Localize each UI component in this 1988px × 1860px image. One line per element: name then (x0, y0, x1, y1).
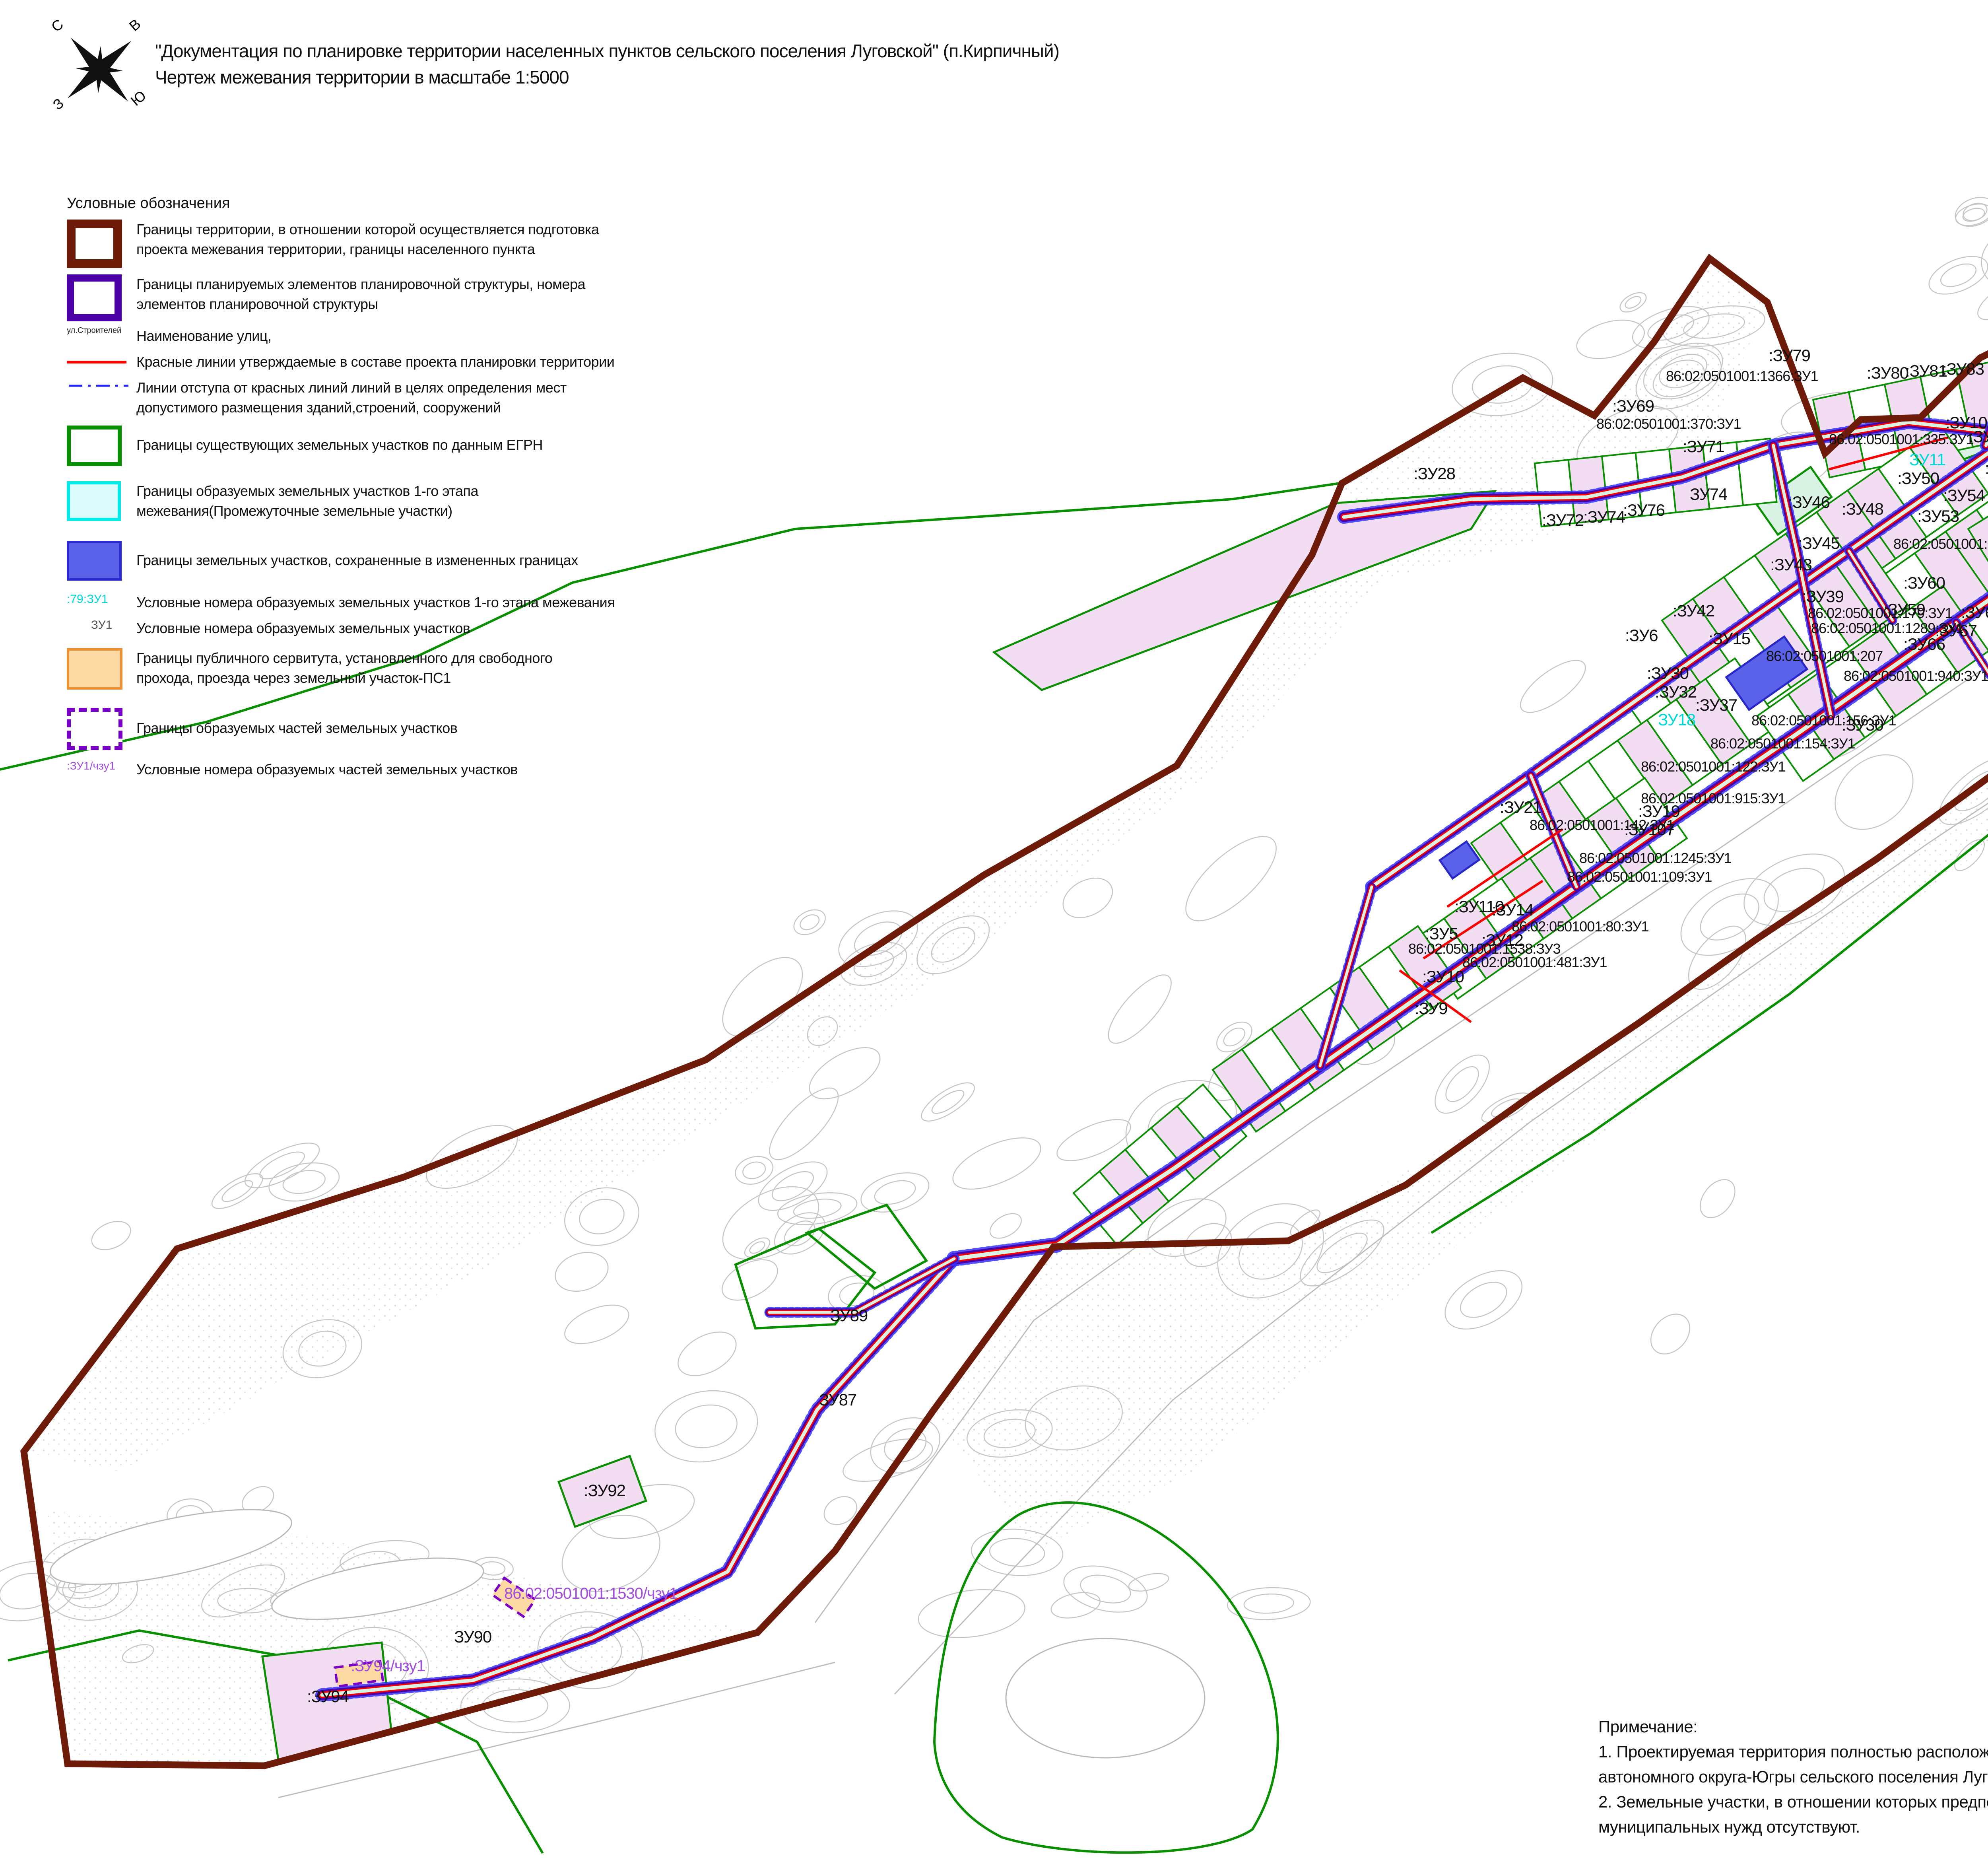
map-label: :ЗУ48 (1842, 499, 1883, 518)
legend-item-red-lines: Красные линии утверждаемые в составе про… (67, 352, 614, 372)
compass-rose: С В З Ю (32, 4, 163, 135)
note-line: 2. Земельные участки, в отношении которы… (1598, 1789, 1988, 1814)
map-label: :ЗУ72 (1542, 511, 1584, 529)
map-label: ЗУ18 (1658, 710, 1695, 729)
legend-item-egrn-parcels: Границы существующих земельных участков … (67, 426, 543, 466)
map-label: :ЗУ94 (307, 1687, 349, 1706)
note-line: Примечание: (1598, 1714, 1988, 1739)
map-label: :ЗУ15 (1708, 629, 1750, 648)
map-label: :ЗУ42 (1673, 601, 1714, 620)
offset-line-swatch (67, 378, 130, 394)
legend-item-saved-parcels: Границы земельных участков, сохраненные … (67, 541, 578, 581)
map-label: :ЗУ9 (1415, 999, 1448, 1018)
notes-block: Примечание: 1. Проектируемая территория … (1598, 1714, 1988, 1839)
map-label: ЗУ89 (830, 1306, 868, 1325)
map-label: :ЗУ55 (1985, 459, 1988, 478)
map-label: :ЗУ53 (1917, 507, 1959, 525)
map-label: :ЗУ32 (1655, 682, 1697, 701)
legend-item-part-numbers: :ЗУ1/чзу1 Условные номера образуемых час… (67, 760, 518, 779)
map-label: :ЗУ50 (1897, 469, 1939, 488)
map-label: :ЗУ66 (1903, 635, 1945, 653)
map-label: :ЗУ46 (1788, 493, 1830, 511)
map-label: ЗУ11 (1909, 450, 1945, 469)
map-label: :ЗУ68 (1961, 603, 1988, 622)
map-label: :ЗУ10 (1422, 967, 1464, 986)
map-label: :ЗУ80 (1867, 363, 1908, 382)
street-name-sample: ул.Строителей (67, 326, 121, 335)
stage1-number-sample: :79:ЗУ1 (67, 593, 108, 606)
map-label: :ЗУ76 (1623, 501, 1665, 519)
map-label: 86:02:0501001:940:ЗУ1 (1844, 668, 1988, 684)
map-label: :ЗУ74 (1583, 507, 1625, 526)
map-label: 86:02:0501001:1366:ЗУ1 (1666, 368, 1818, 384)
legend-item-planning-elements: Границы планируемых элементов планировоч… (67, 274, 585, 321)
map-label: ЗУ87 (819, 1390, 856, 1409)
map-label: :ЗУ54 (1943, 486, 1985, 505)
map-label: 86:02:0501001:1245:ЗУ1 (1579, 850, 1732, 866)
map-label: 86:02:0501001:481:ЗУ1 (1462, 954, 1607, 970)
legend-item-parcel-numbers: ЗУ1 Условные номера образуемых земельных… (67, 618, 470, 638)
map-label: 86:02:0501001:370:ЗУ1 (1596, 416, 1741, 432)
egrn-parcel-swatch (67, 426, 122, 466)
map-label: :ЗУ60 (1903, 573, 1945, 592)
map-label: :ЗУ5 (1425, 924, 1458, 943)
map-label: ЗУ90 (454, 1627, 491, 1646)
legend-item-street-names: ул.Строителей Наименование улиц, (67, 326, 272, 346)
page: { "title": { "line1": "\"Документация по… (0, 0, 1988, 1860)
legend-item-stage1-numbers: :79:ЗУ1 Условные номера образуемых земел… (67, 593, 615, 612)
map-label: 86:02:0501001:122:ЗУ1 (1641, 758, 1786, 775)
map-label: 86:02:0501001:154:ЗУ1 (1710, 735, 1855, 752)
map-label: 86:02:0501001:335:ЗУ1 (1829, 431, 1974, 447)
note-line: автономного округа-Югры сельского поселе… (1598, 1764, 1988, 1789)
map-label: :ЗУ107 (1624, 820, 1675, 839)
map-label: 86:02:0501001:179:ЗУ1 (1808, 605, 1953, 621)
part-number-sample: :ЗУ1/чзу1 (67, 760, 115, 772)
map-label: :ЗУ30 (1647, 664, 1689, 682)
red-line-swatch (67, 361, 126, 363)
compass-east-label: В (126, 16, 144, 34)
title-line-1: "Документация по планировке территории н… (155, 38, 1507, 64)
compass-south-label: Ю (128, 87, 149, 109)
map-label: :ЗУ92 (584, 1481, 625, 1500)
map-label: :ЗУ105 (1969, 427, 1988, 446)
map-label: ЗУ74 (1690, 485, 1728, 503)
map-label: :ЗУ94/чзу1 (351, 1657, 425, 1675)
map-label: :ЗУ6 (1625, 626, 1658, 645)
stage1-parcel-swatch (67, 481, 121, 521)
parcel-number-sample: ЗУ1 (91, 618, 113, 632)
note-line: 1. Проектируемая территория полностью ра… (1598, 1739, 1988, 1764)
servitude-swatch (67, 648, 122, 690)
legend-item-parcel-parts: Границы образуемых частей земельных учас… (67, 708, 457, 750)
map-label: 86:02:0501001:915:ЗУ1 (1641, 790, 1786, 807)
drawing-title: "Документация по планировке территории н… (155, 38, 1507, 90)
map-label: :ЗУ39 (1802, 587, 1844, 606)
map-label: :ЗУ83 (1942, 360, 1984, 378)
map-label: 86:02:0501001:80:ЗУ1 (1512, 918, 1649, 935)
territory-boundary-swatch (67, 220, 122, 268)
map-label: :ЗУ81 (1905, 362, 1947, 380)
map-label: :ЗУ71 (1683, 437, 1724, 456)
map-label: 86:02:0501001:1530/чзу1 (504, 1585, 678, 1602)
map-label: :ЗУ43 (1770, 555, 1812, 574)
map-label: :ЗУ21 (1500, 798, 1541, 816)
planning-element-swatch (67, 274, 122, 321)
legend-heading: Условные обозначения (67, 195, 230, 212)
saved-parcel-swatch (67, 541, 122, 581)
title-line-2: Чертеж межевания территории в масштабе 1… (155, 64, 1507, 90)
legend-item-stage1-parcels: Границы образуемых земельных участков 1-… (67, 481, 478, 521)
legend-item-servitude: Границы публичного сервитута, установлен… (67, 648, 552, 690)
legend-item-territory-boundary: Границы территории, в отношении которой … (67, 220, 599, 268)
map-label: 86:02:0501001:272:ЗУ1 (1893, 536, 1988, 552)
map-label: 86:02:0501001:109:ЗУ1 (1567, 869, 1712, 885)
map-label: :ЗУ69 (1612, 396, 1654, 415)
map-label: :ЗУ45 (1798, 534, 1840, 552)
legend-item-offset-lines: Линии отступа от красных линий линий в ц… (67, 378, 567, 418)
map-label: :ЗУ14 (1492, 900, 1534, 919)
map-label: :ЗУ28 (1413, 464, 1455, 483)
lake (1006, 1638, 1205, 1758)
map-label: :ЗУ30 (1842, 715, 1883, 734)
note-line: муниципальных нужд отсутствуют. (1598, 1814, 1988, 1839)
map-label: 86:02:0501001:207 (1766, 648, 1883, 664)
compass-west-label: З (50, 95, 67, 113)
map-label: :ЗУ37 (1695, 696, 1737, 714)
map-label: :ЗУ79 (1769, 346, 1810, 365)
compass-north-label: С (48, 16, 66, 35)
parcel-part-swatch (67, 708, 122, 750)
